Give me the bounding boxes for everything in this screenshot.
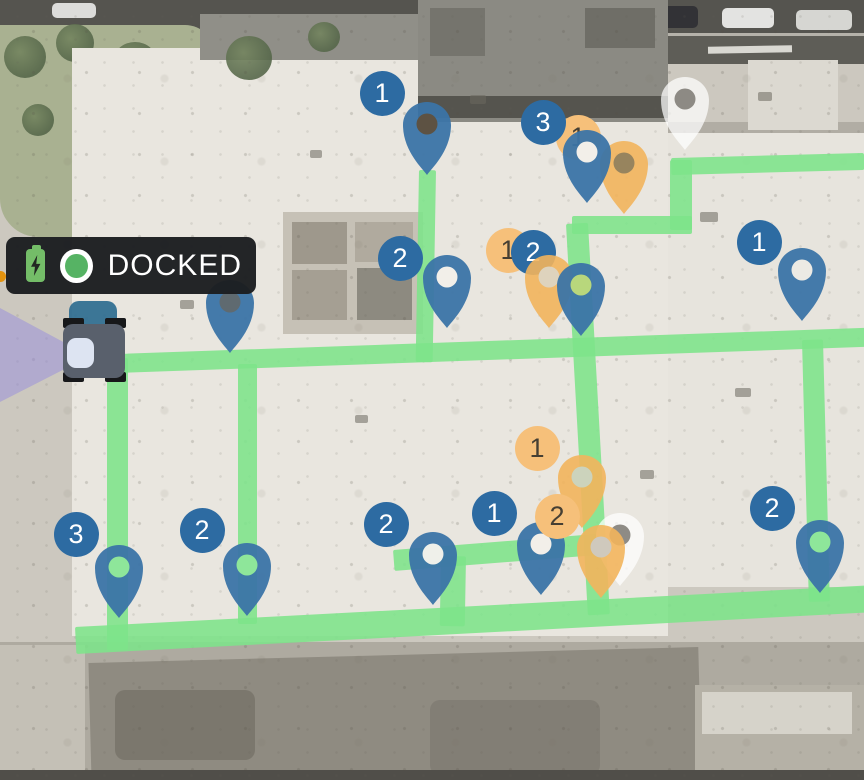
waypoint-count-badge[interactable]: 1 (472, 491, 517, 536)
map-pin-blue[interactable] (405, 529, 461, 607)
map-pin-blue[interactable] (559, 127, 615, 205)
status-dot-icon (60, 249, 92, 283)
map-pin-blue[interactable] (792, 517, 848, 595)
waypoint-count-badge[interactable]: 2 (378, 236, 423, 281)
map-pin-blue[interactable] (553, 260, 609, 338)
map-pin-blue[interactable] (774, 245, 830, 323)
waypoint-marker-layer: 13121211123222 (0, 0, 864, 780)
battery-charging-icon (26, 249, 45, 282)
waypoint-count-badge[interactable]: 1 (360, 71, 405, 116)
waypoint-count-badge[interactable]: 1 (515, 426, 560, 471)
map-pin-ghost[interactable] (657, 74, 713, 152)
map-pin-blue[interactable] (91, 542, 147, 620)
map-pin-orange[interactable] (573, 522, 629, 600)
map-canvas[interactable]: 13121211123222 DOCKED (0, 0, 864, 780)
map-pin-blue[interactable] (219, 540, 275, 618)
map-pin-blue[interactable] (419, 252, 475, 330)
robot-status-pill[interactable]: DOCKED (6, 237, 256, 294)
waypoint-count-badge[interactable]: 2 (180, 508, 225, 553)
waypoint-count-badge[interactable]: 2 (750, 486, 795, 531)
lightning-bolt-icon (29, 255, 42, 276)
waypoint-count-badge[interactable]: 1 (737, 220, 782, 265)
robot-status-label: DOCKED (108, 249, 242, 283)
map-pin-blue[interactable] (399, 99, 455, 177)
waypoint-count-badge[interactable]: 2 (535, 494, 580, 539)
waypoint-count-badge[interactable]: 2 (364, 502, 409, 547)
waypoint-count-badge[interactable]: 3 (54, 512, 99, 557)
